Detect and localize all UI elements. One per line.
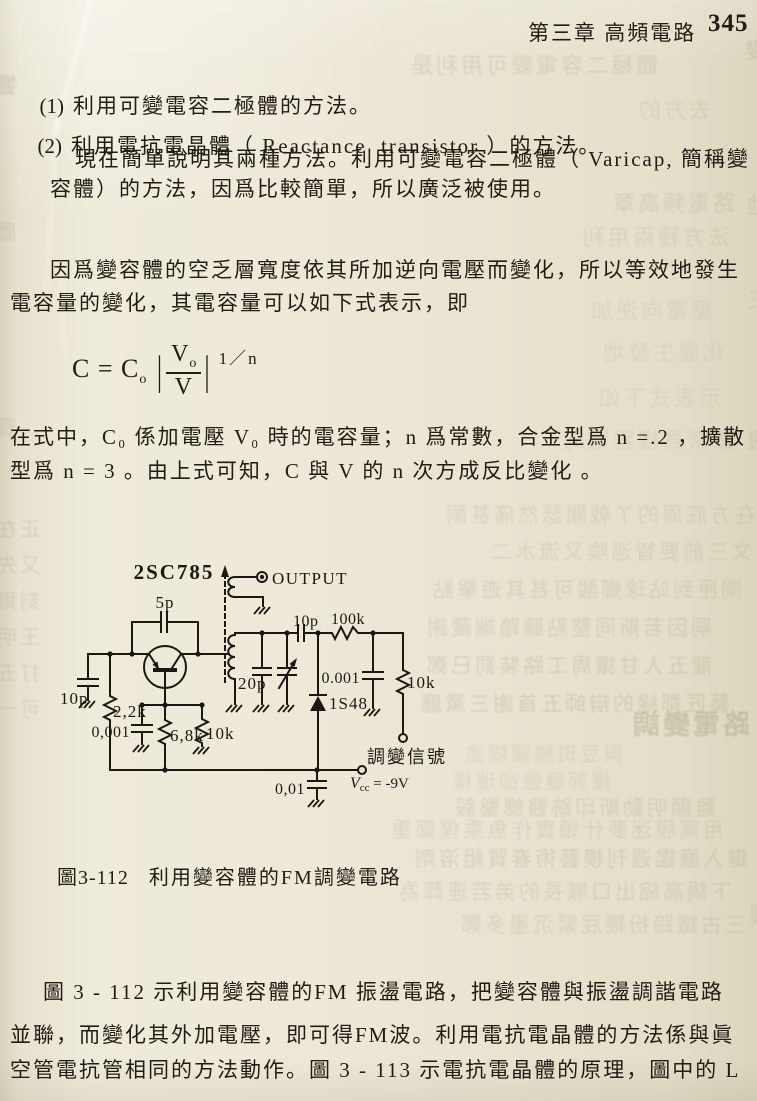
modulation-signal-label: 調變信號 <box>367 747 447 767</box>
intro-line-1: 現在簡單說明其兩種方法。利用可變電容二極體（ Varicap, 簡稱變 <box>75 147 750 171</box>
list-item-2-marker: (2) <box>38 134 63 158</box>
formula-abs-bar-right: | <box>204 347 210 395</box>
modulation-resistor-label: 10k <box>407 673 436 692</box>
supply-capacitor-label: 0,01 <box>275 781 305 798</box>
figure-caption-title: 利用變容體的FM調變電路 <box>149 867 402 889</box>
trimmer-capacitor <box>278 633 297 712</box>
formula-abs-bar-left: | <box>157 347 163 395</box>
transistor-symbol <box>144 646 186 705</box>
transistor-label: 2SC785 <box>134 560 215 584</box>
emitter-resistor-2-label: 10k <box>206 724 235 743</box>
feedback-capacitor <box>132 612 198 654</box>
decoupling-capacitor-label: 0.001 <box>322 670 361 687</box>
series-resistor-label: 100k <box>331 611 365 628</box>
vcc-terminal <box>358 766 366 774</box>
chapter-header: 第三章 高頻電路 <box>528 17 696 47</box>
varactor-paragraph-line-2: 電容量的變化，其電容量可以如下式表示，即 <box>10 291 470 315</box>
supply-capacitor <box>308 770 326 807</box>
input-capacitor-label: 10p <box>60 689 89 708</box>
closing-paragraph-line-3: 空管電抗管相同的方法動作。圖 3 - 113 示電抗電晶體的原理，圖中的 L <box>10 1058 740 1082</box>
vcc-label: Vcc = -9V <box>350 775 409 794</box>
page-number: 345 <box>708 10 749 38</box>
figure-3-112: 2SC785 OUTPUT 5p 10p 2,2k <box>50 550 450 840</box>
coupling-capacitor-label: 10p <box>293 613 319 630</box>
tank-capacitor <box>253 633 271 712</box>
tank-coil <box>226 633 242 712</box>
fm-modulator-circuit-diagram: 2SC785 OUTPUT 5p 10p 2,2k <box>50 550 450 835</box>
formula-fraction: Vo V <box>166 342 201 401</box>
figure-caption-number: 圖3-112 <box>57 867 129 889</box>
base-bypass-capacitor-label: 0,001 <box>92 724 131 741</box>
formula-lhs: C = Co <box>72 354 154 388</box>
closing-paragraph-line-2: 並聯，而變化其外加電壓，即可得FM波。利用電抗電晶體的方法係與眞 <box>10 1023 734 1047</box>
intro-line-2: 容體）的方法，因爲比較簡單，所以廣泛被使用。 <box>50 177 556 201</box>
formula-explanation-line-1: 在式中，C₀ 係加電壓 V₀ 時的電容量；n 爲常數，合金型爲 n =.2 ，擴… <box>10 425 746 449</box>
output-terminal <box>257 572 267 582</box>
formula-explanation-line-2: 型爲 n = 3 。由上式可知，C 與 V 的 n 次方成反比變化 。 <box>10 459 604 483</box>
varactor-diode <box>310 633 326 770</box>
scanned-book-page: { "page": { "header": { "chapter": "第三章 … <box>0 0 757 1101</box>
closing-paragraph-line-1: 圖 3 - 112 示利用變容體的FM 振盪電路，把變容體與振盪調諧電路 <box>43 980 724 1004</box>
figure-caption: 圖3-112利用變容體的FM調變電路 <box>57 861 402 890</box>
varactor-paragraph-line-1: 因爲變容體的空乏層寬度依其所加逆向電壓而變化，所以等效地發生 <box>50 258 740 282</box>
capacitance-formula: C = Co | Vo V | 1／n <box>72 342 259 401</box>
output-label: OUTPUT <box>272 569 348 588</box>
series-resistor <box>318 627 403 639</box>
varactor-diode-label: 1S48 <box>329 694 368 713</box>
formula-exponent: 1／n <box>219 344 259 369</box>
feedback-capacitor-label: 5p <box>156 593 175 612</box>
formula-denominator: V <box>175 374 193 400</box>
tank-capacitor-label: 20p <box>238 674 267 693</box>
formula-numerator: Vo <box>166 342 201 374</box>
